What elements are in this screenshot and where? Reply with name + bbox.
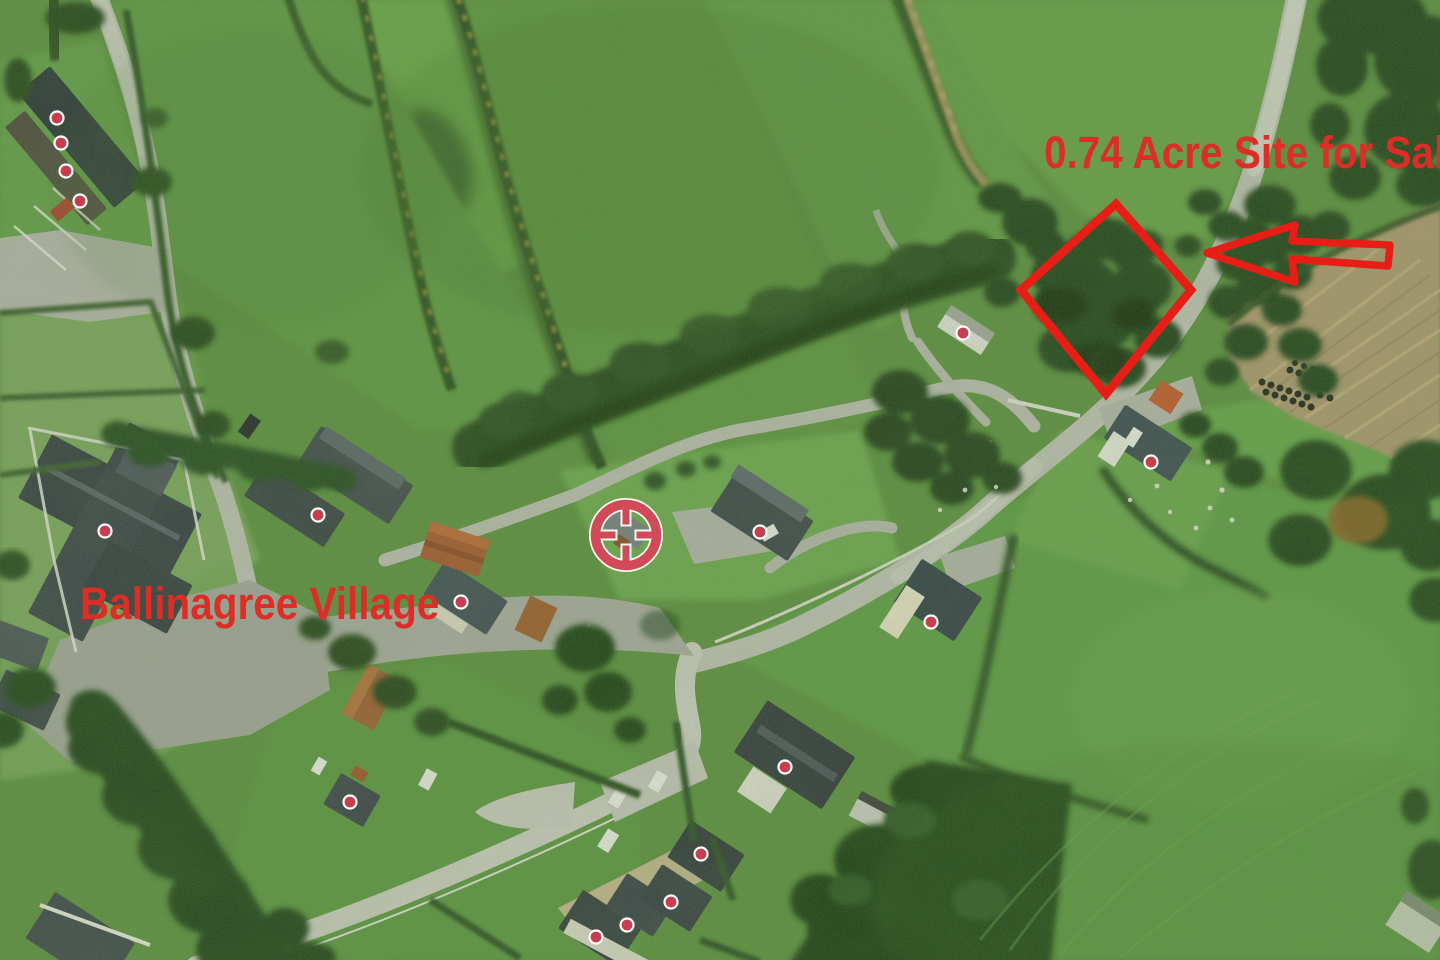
- svg-text:Ballinagree Village: Ballinagree Village: [80, 579, 439, 629]
- svg-text:0.74 Acre Site for Sale: 0.74 Acre Site for Sale: [1044, 128, 1440, 178]
